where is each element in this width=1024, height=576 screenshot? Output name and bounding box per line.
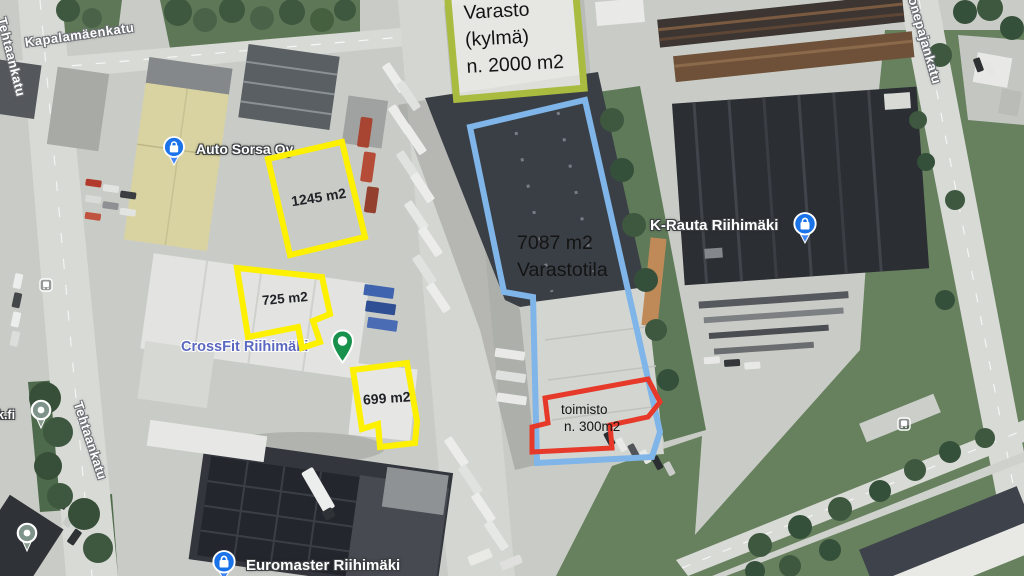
area-699-label: 699 m2 [362, 388, 410, 407]
toimisto-label: toimisto n. 300m2 [561, 401, 620, 435]
area-annotations [0, 0, 1024, 576]
satellite-map[interactable]: Kapalamäenkatu Tehtaankatu Tehtaankatu K… [0, 0, 1024, 576]
varasto-kylma-label: Varasto (kylmä) n. 2000 m2 [463, 0, 565, 81]
varastotila-label: 7087 m2 Varastotila [517, 230, 608, 284]
area-725-outline [237, 268, 330, 348]
